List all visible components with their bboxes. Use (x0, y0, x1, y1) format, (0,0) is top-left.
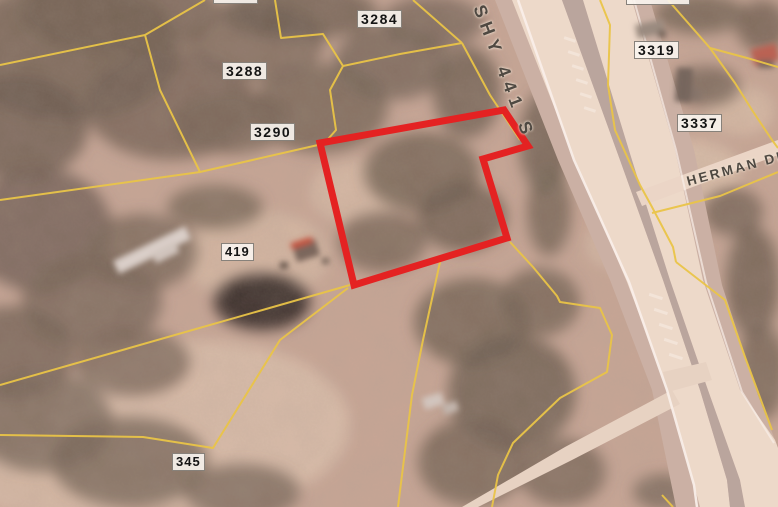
house-3319-annex (658, 30, 666, 38)
parcel-label-3319: 3319 (634, 41, 679, 59)
parcel-label-419: 419 (221, 243, 254, 261)
parcel-label-3288: 3288 (222, 62, 267, 80)
house-3337 (675, 67, 693, 102)
parcel-label-3284: 3284 (357, 10, 402, 28)
parcel-label-3337: 3337 (677, 114, 722, 132)
parcel-label-3286-partial: 3286 (213, 0, 258, 4)
house-3337-annex (692, 88, 701, 100)
shed-419-b (322, 258, 329, 264)
aerial-imagery (0, 0, 778, 507)
map-canvas[interactable]: 3284 3288 3290 419 345 3319 3337 3297 32… (0, 0, 778, 507)
parcel-label-3297-partial: 3297 (626, 0, 690, 5)
parcel-label-3290: 3290 (250, 123, 295, 141)
shed-419-a (280, 262, 288, 269)
parcel-label-345: 345 (172, 453, 205, 471)
